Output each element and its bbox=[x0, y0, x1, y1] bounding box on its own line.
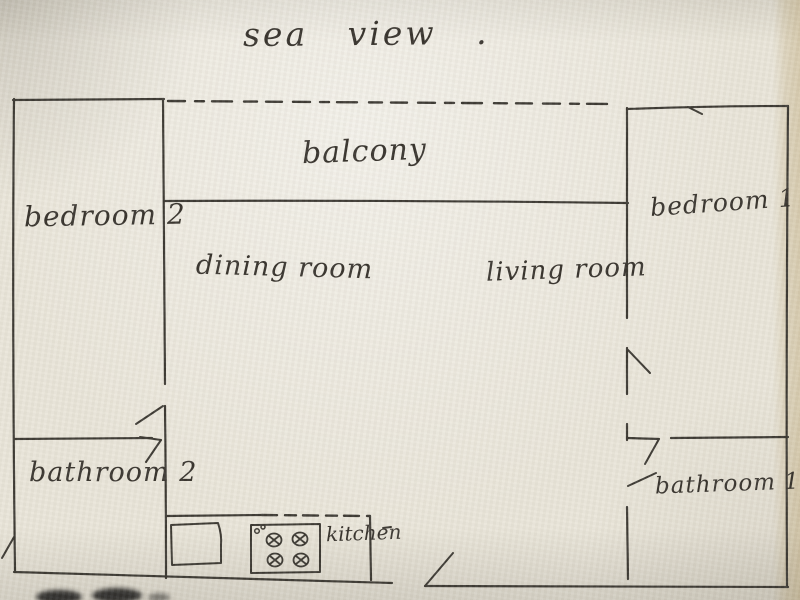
floorplan-drawing bbox=[0, 0, 800, 600]
wall-left-outer bbox=[13, 99, 15, 572]
photo-artifact-smudge bbox=[92, 588, 142, 600]
stray-marks bbox=[2, 107, 702, 558]
stove-burner bbox=[268, 554, 283, 567]
stove-outline bbox=[251, 524, 320, 573]
stove-icon bbox=[251, 524, 320, 573]
wall-bedroom2-right-upper bbox=[163, 99, 165, 384]
wall-right-outer bbox=[787, 106, 788, 586]
door-bathroom1-lower bbox=[628, 473, 656, 486]
wall-bottom-right bbox=[425, 586, 788, 587]
wall-kitchen-top-solid bbox=[166, 515, 262, 516]
label-bathroom-1: bathroom 1 bbox=[655, 468, 800, 499]
label-balcony: balcony bbox=[301, 132, 427, 171]
stray-stroke-bottom-left bbox=[2, 537, 14, 558]
label-kitchen: kitchen bbox=[326, 520, 402, 547]
title-sea-view: sea view . bbox=[243, 13, 490, 54]
stove-burner bbox=[293, 533, 308, 546]
label-living-room: living room bbox=[486, 252, 648, 288]
photo-artifact-smudge bbox=[148, 593, 170, 600]
wall-bedroom2-right-lower bbox=[165, 406, 166, 578]
wall-bathroom1-top-stub bbox=[627, 438, 659, 439]
wall-bathroom1-top bbox=[671, 437, 788, 438]
label-dining-room: dining room bbox=[196, 250, 374, 286]
floorplan-photo: sea view . balcony bedroom 2 bedroom 1 d… bbox=[0, 0, 800, 600]
door-marks bbox=[136, 350, 659, 586]
stove-burner bbox=[267, 534, 282, 547]
kitchen-dashed-line bbox=[262, 515, 370, 516]
photo-artifact-smudge bbox=[36, 590, 82, 600]
balcony-open-side-dashed-line bbox=[168, 101, 610, 104]
door-bedroom1 bbox=[628, 350, 650, 373]
wall-bathroom1-left-lower bbox=[627, 507, 628, 579]
wall-bathroom2-top bbox=[14, 438, 152, 439]
door-entrance bbox=[425, 553, 453, 586]
sink-icon bbox=[171, 523, 221, 565]
wall-bottom-left bbox=[14, 572, 392, 583]
wall-bedroom1-top bbox=[627, 106, 788, 109]
stove-knobs bbox=[255, 525, 265, 533]
label-bedroom-2: bedroom 2 bbox=[24, 198, 186, 234]
stove-burner bbox=[294, 554, 309, 567]
door-bedroom2 bbox=[136, 406, 163, 424]
walls bbox=[13, 99, 788, 587]
wall-bedroom2-top bbox=[13, 99, 164, 100]
door-bathroom1-upper bbox=[645, 439, 659, 464]
label-bathroom-2: bathroom 2 bbox=[29, 457, 197, 488]
wall-balcony-inner bbox=[164, 201, 628, 203]
